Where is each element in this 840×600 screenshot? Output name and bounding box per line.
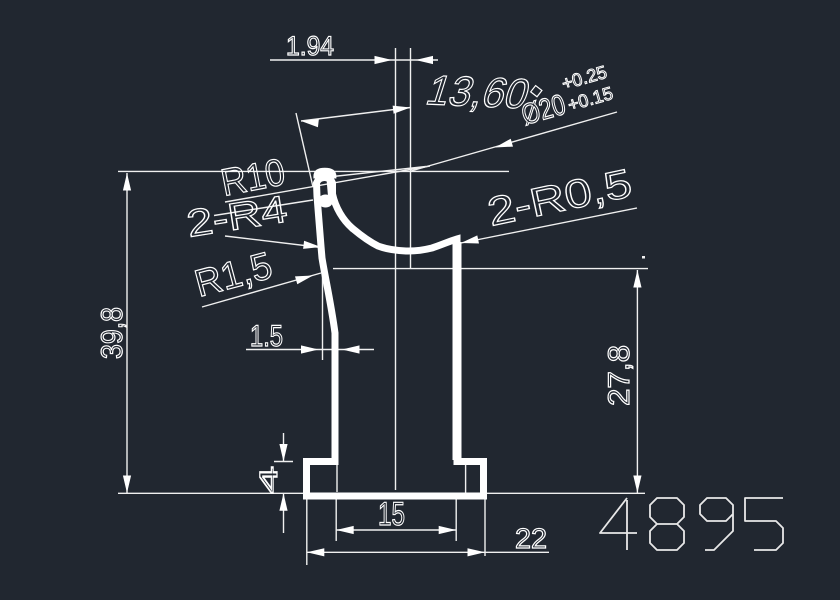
svg-text:27,8: 27,8	[603, 345, 636, 406]
svg-text:1.5: 1.5	[250, 320, 283, 353]
svg-text:15: 15	[378, 495, 405, 532]
svg-text:1.94: 1.94	[286, 31, 334, 61]
svg-text:22: 22	[515, 523, 547, 554]
svg-text:13,60: 13,60	[421, 66, 536, 117]
svg-text:39,8: 39,8	[96, 307, 129, 359]
svg-text:4: 4	[255, 466, 283, 494]
